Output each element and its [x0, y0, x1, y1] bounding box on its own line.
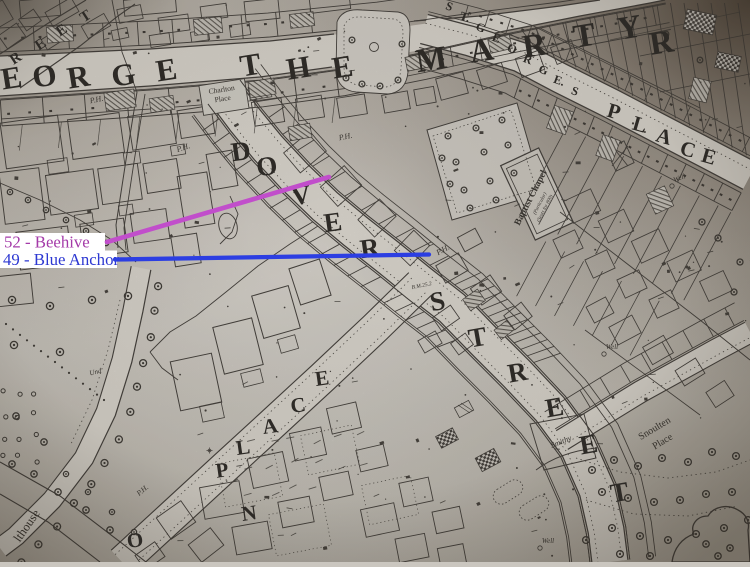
svg-text:M: M [413, 40, 449, 80]
svg-text:49 - Blue Anchor: 49 - Blue Anchor [3, 250, 119, 269]
svg-text:O: O [125, 527, 145, 553]
svg-text:52 - Beehive: 52 - Beehive [4, 233, 90, 252]
svg-text:O: O [254, 150, 279, 183]
svg-text:D: D [229, 135, 252, 167]
